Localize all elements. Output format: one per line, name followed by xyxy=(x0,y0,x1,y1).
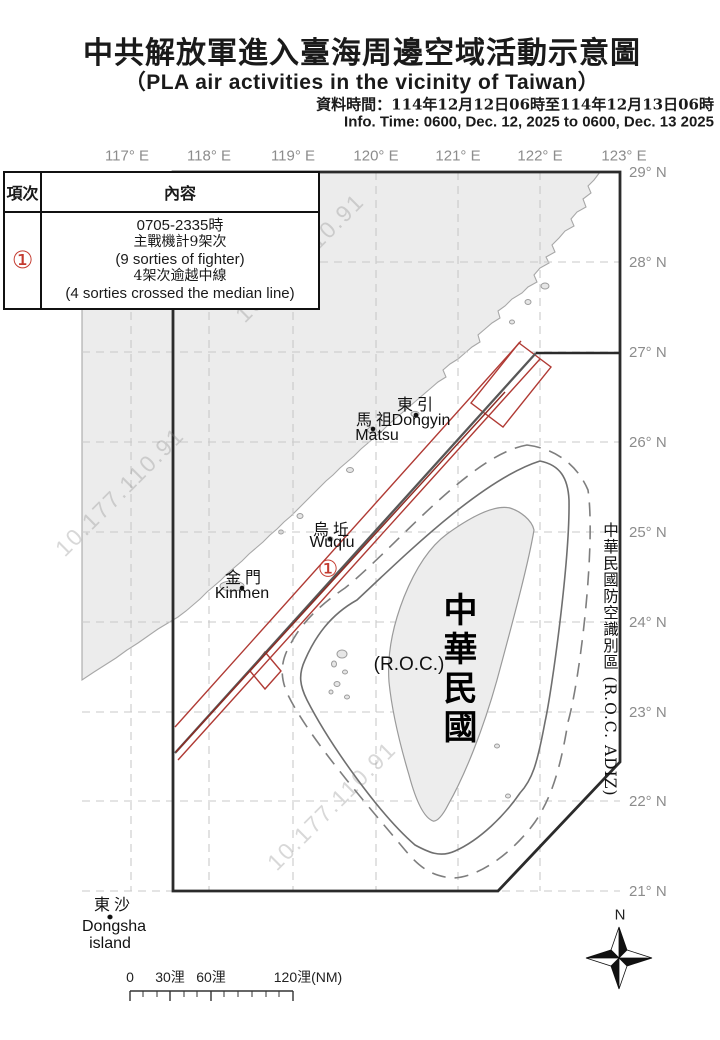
dongsha-label-zh: 東沙 xyxy=(94,891,134,915)
scale-label-0: 0 xyxy=(126,969,134,985)
legend-line: 0705-2335時 xyxy=(137,217,224,234)
legend-line: 主戰機計9架次 xyxy=(134,234,227,251)
lat-label: 28° N xyxy=(629,254,667,271)
lon-label: 117° E xyxy=(105,148,149,165)
lon-label: 118° E xyxy=(187,148,231,165)
matsu-label-en: Matsu xyxy=(355,427,399,445)
scale-label-60: 60浬 xyxy=(196,967,226,987)
north-arrow-icon xyxy=(586,927,652,989)
scale-label-30: 30浬 xyxy=(155,967,185,987)
lon-label: 121° E xyxy=(435,148,480,165)
data-time-zh: 資料時間：114年12月12日06時至114年12月13日06時 xyxy=(316,94,714,115)
lat-label: 27° N xyxy=(629,344,667,361)
lat-label: 25° N xyxy=(629,524,667,541)
lat-label: 26° N xyxy=(629,434,667,451)
dongsha-label-en2: island xyxy=(89,935,131,953)
dongyin-label-en: Dongyin xyxy=(392,412,451,430)
activity-box-north xyxy=(471,343,551,427)
lat-label: 24° N xyxy=(629,614,667,631)
lon-label: 122° E xyxy=(517,148,562,165)
map-figure: 10.177.110.91 10.177.110.91 10.177.110.9… xyxy=(0,0,720,1040)
activity-legend-table: 項次 內容 ① 0705-2335時 主戰機計9架次 (9 sorties of… xyxy=(3,171,320,310)
legend-line: (4 sorties crossed the median line) xyxy=(65,285,294,302)
lon-label: 119° E xyxy=(271,148,315,165)
kinmen-label-en: Kinmen xyxy=(215,585,269,603)
adiz-boundary-label: 中華民國防空識別區 (R.O.C. ADIZ) xyxy=(599,522,621,797)
lat-label: 29° N xyxy=(629,164,667,181)
scale-bar xyxy=(130,991,293,1001)
legend-line: (9 sorties of fighter) xyxy=(115,251,244,268)
activity-box-small xyxy=(250,652,281,689)
north-label: N xyxy=(615,907,626,924)
lat-label: 22° N xyxy=(629,793,667,810)
legend-line: 4架次逾越中線 xyxy=(134,268,227,285)
legend-row-content: 0705-2335時 主戰機計9架次 (9 sorties of fighter… xyxy=(42,213,318,308)
legend-col-content: 內容 xyxy=(42,173,318,213)
lat-label: 23° N xyxy=(629,704,667,721)
corridor-marker-1: ① xyxy=(318,556,339,583)
lat-label: 21° N xyxy=(629,883,667,900)
lon-label: 120° E xyxy=(353,148,398,165)
info-time-en: Info. Time: 0600, Dec. 12, 2025 to 0600,… xyxy=(344,114,714,131)
dongsha-label-en: Dongsha xyxy=(82,918,146,936)
page-subtitle: （PLA air activities in the vicinity of T… xyxy=(125,66,600,96)
legend-row-number: ① xyxy=(5,213,42,308)
scale-label-120: 120浬(NM) xyxy=(274,967,342,987)
legend-col-item: 項次 xyxy=(5,173,42,213)
lon-label: 123° E xyxy=(601,148,646,165)
wuqiu-label-en: Wuqiu xyxy=(309,534,354,552)
taiwan-roc-label-en: (R.O.C.) xyxy=(374,654,445,676)
